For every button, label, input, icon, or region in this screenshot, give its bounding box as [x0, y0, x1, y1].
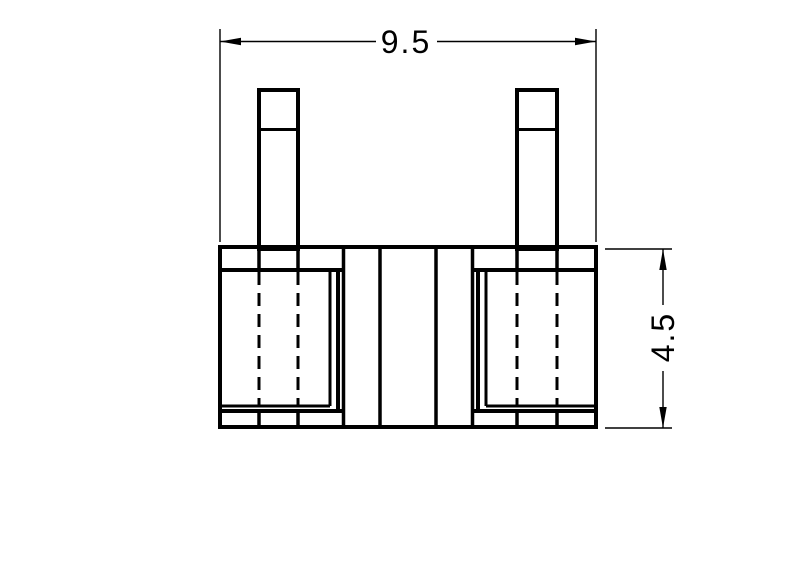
left-terminal-block — [220, 270, 344, 411]
width-dimension-label: 9.5 — [381, 24, 431, 60]
arrowhead-up-icon — [659, 249, 666, 270]
wall-ticks — [259, 247, 557, 427]
right-pin — [517, 90, 557, 249]
right-pin-outline — [517, 90, 557, 249]
width-dimension: 9.5 — [220, 24, 596, 242]
left-pin-outline — [259, 90, 298, 249]
left-pin — [259, 90, 298, 249]
arrowhead-down-icon — [659, 407, 666, 428]
body-outline — [220, 247, 596, 427]
technical-drawing: 9.5 4.5 — [0, 0, 800, 576]
height-dimension-label: 4.5 — [645, 312, 681, 362]
drawing-canvas: 9.5 4.5 — [0, 0, 800, 576]
arrowhead-left-icon — [220, 38, 241, 45]
right-terminal-block — [473, 270, 597, 411]
hidden-lines — [259, 272, 557, 406]
arrowhead-right-icon — [575, 38, 596, 45]
body-partitions — [344, 247, 473, 427]
height-dimension: 4.5 — [605, 249, 681, 428]
